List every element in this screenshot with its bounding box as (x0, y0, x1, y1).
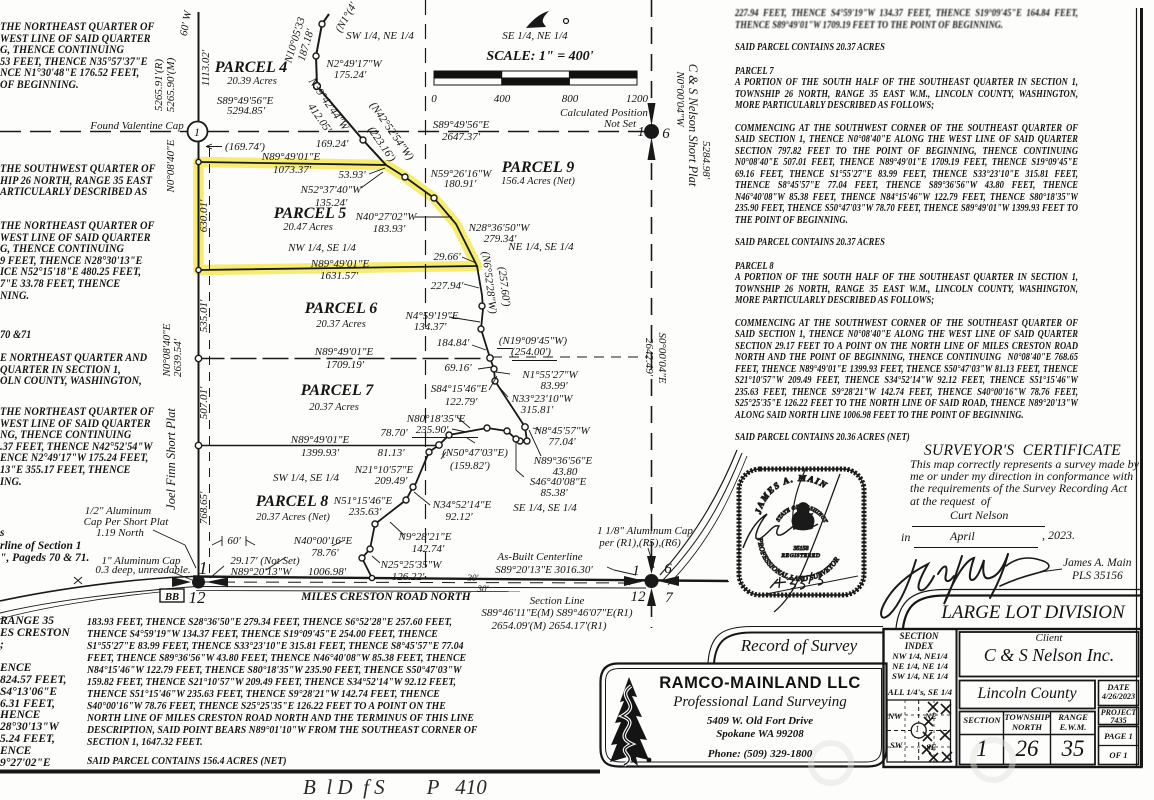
svg-text:35158: 35158 (793, 546, 809, 552)
svg-text:REGISTERED: REGISTERED (781, 553, 821, 559)
svg-text:PROFESSIONAL LAND SURVEYOR: PROFESSIONAL LAND SURVEYOR (756, 537, 841, 583)
